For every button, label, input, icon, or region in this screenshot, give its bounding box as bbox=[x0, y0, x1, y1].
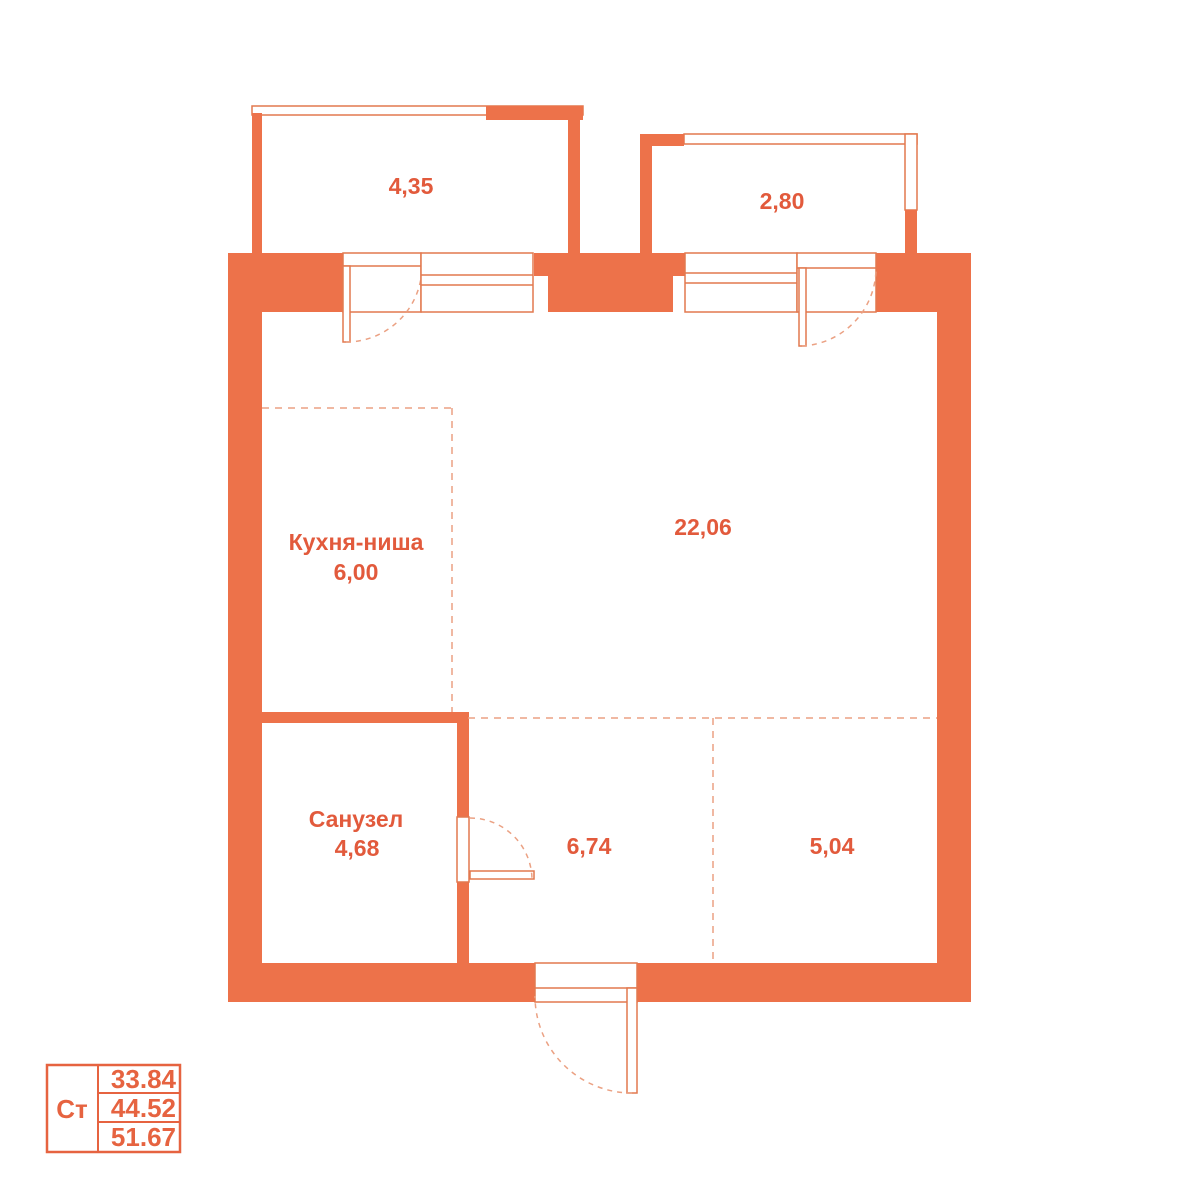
legend-value-3: 51.67 bbox=[111, 1122, 176, 1152]
balcony-door1-opening bbox=[343, 253, 421, 312]
window-2 bbox=[685, 253, 797, 312]
right-wall bbox=[937, 253, 971, 1002]
bathroom-name-label: Санузел bbox=[309, 806, 404, 832]
legend-value-2: 44.52 bbox=[111, 1093, 176, 1123]
floorplan-canvas: 4,35 2,80 Кухня-ниша 6,00 22,06 Санузел … bbox=[0, 0, 1200, 1200]
balcony-door2-opening bbox=[797, 253, 876, 312]
balcony2-parapet-band bbox=[684, 134, 917, 144]
balcony-door-1 bbox=[343, 253, 422, 342]
entrance-door-leaf bbox=[627, 988, 637, 1093]
balcony-door2-leaf bbox=[799, 268, 806, 346]
window-1 bbox=[421, 253, 533, 312]
bathroom-door-open-leaf bbox=[470, 871, 534, 879]
top-left-corner-wall bbox=[228, 253, 343, 312]
kitchen-area-label: 6,00 bbox=[334, 559, 379, 585]
zone-boundaries bbox=[262, 408, 937, 963]
outer-walls bbox=[228, 253, 971, 1002]
left-wall bbox=[228, 253, 262, 1002]
bathroom-right-wall-upper bbox=[457, 712, 469, 817]
balcony2-right-band bbox=[905, 134, 917, 210]
hall-area-label: 6,74 bbox=[567, 833, 612, 859]
balcony1-right-wall bbox=[568, 106, 580, 256]
entrance-door-swing-arc bbox=[535, 996, 632, 1093]
balcony2-left-wall bbox=[640, 134, 652, 258]
top-middle-pier bbox=[548, 253, 673, 312]
balcony-door-2 bbox=[797, 253, 876, 346]
bathroom-top-wall bbox=[262, 712, 468, 723]
bottom-wall-left-segment bbox=[228, 963, 535, 1002]
kitchen-name-label: Кухня-ниша bbox=[289, 529, 424, 555]
legend-table: Ст 33.84 44.52 51.67 bbox=[47, 1064, 180, 1152]
bathroom-door-closed-leaf bbox=[457, 817, 469, 882]
bathroom-right-wall-lower bbox=[457, 882, 469, 963]
balcony2-area-label: 2,80 bbox=[760, 188, 805, 214]
living-area-label: 22,06 bbox=[674, 514, 732, 540]
balcony2-right-wall bbox=[905, 210, 917, 258]
room2-area-label: 5,04 bbox=[810, 833, 855, 859]
floorplan-drawing: 4,35 2,80 Кухня-ниша 6,00 22,06 Санузел … bbox=[0, 0, 1200, 1200]
bathroom-door bbox=[457, 817, 534, 882]
legend-value-1: 33.84 bbox=[111, 1064, 177, 1094]
balcony1-area-label: 4,35 bbox=[389, 173, 434, 199]
entrance-opening bbox=[535, 963, 637, 1002]
bathroom-area-label: 4,68 bbox=[335, 835, 380, 861]
bottom-wall-right-segment bbox=[637, 963, 971, 1002]
legend-type-label: Ст bbox=[56, 1094, 88, 1124]
entrance-door bbox=[535, 963, 637, 1093]
balcony1-left-wall bbox=[252, 113, 262, 256]
balcony-door1-leaf bbox=[343, 266, 350, 342]
window1-frame bbox=[421, 253, 533, 312]
